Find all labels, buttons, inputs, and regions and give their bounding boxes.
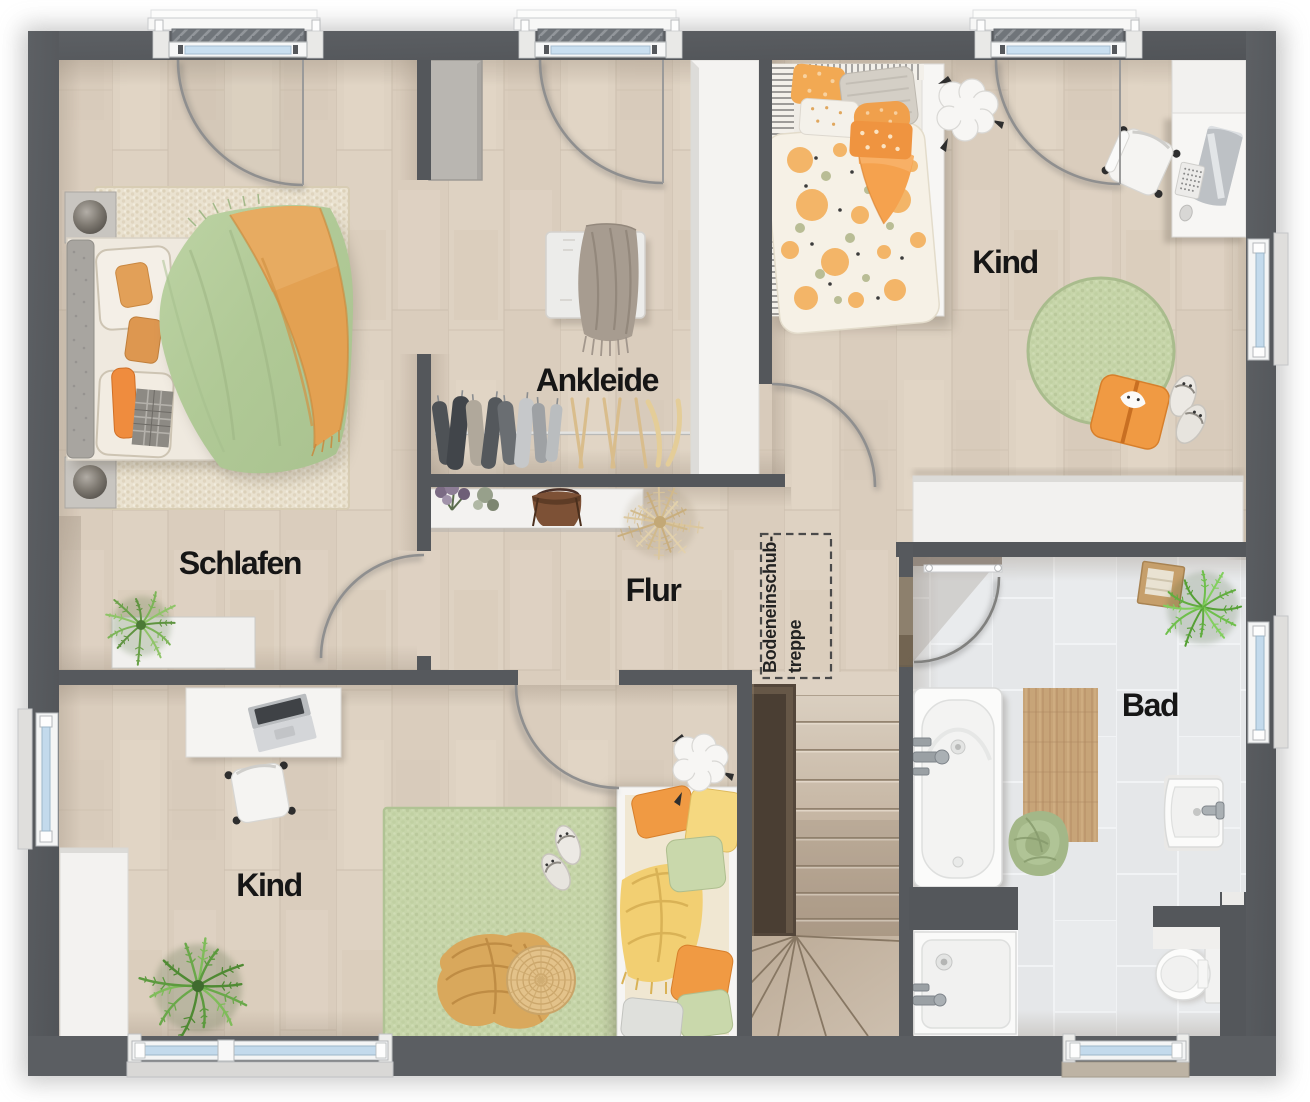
svg-text:treppe: treppe [785,619,805,673]
svg-text:Kind: Kind [236,867,302,903]
svg-text:Bad: Bad [1122,687,1178,723]
svg-text:Flur: Flur [626,572,682,608]
svg-text:Kind: Kind [972,244,1038,280]
svg-text:Schlafen: Schlafen [179,545,301,581]
svg-text:Bodeneinschub-: Bodeneinschub- [760,536,780,673]
svg-text:Ankleide: Ankleide [536,362,659,398]
